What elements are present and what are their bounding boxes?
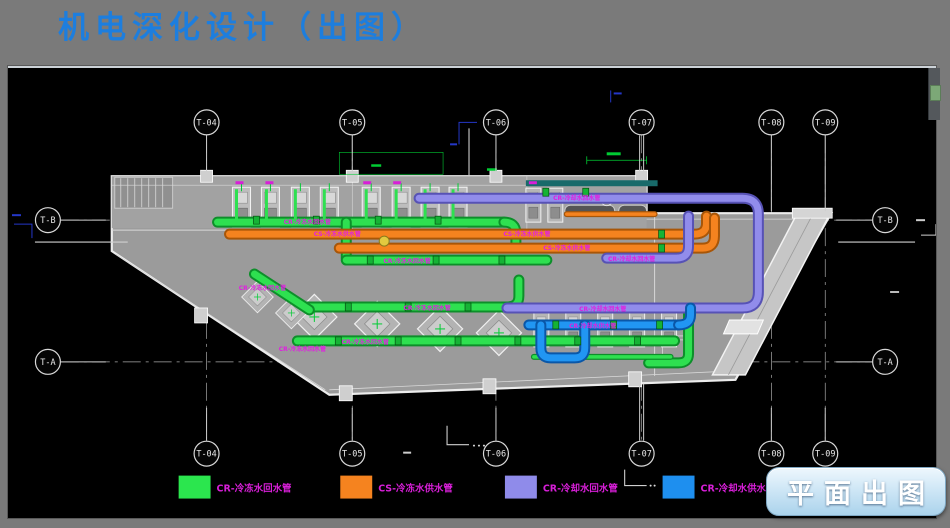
svg-text:T-04: T-04 (196, 117, 216, 127)
pipe-tag: CR-冷冻水回水管 (383, 257, 430, 265)
legend-swatch-cooling-return (505, 476, 537, 499)
legend-label: CR-冷却水回水管 (543, 483, 619, 495)
svg-text:T-B: T-B (877, 215, 892, 225)
svg-text:T-06: T-06 (486, 449, 506, 459)
legend-swatch-chilled-return (179, 476, 211, 499)
pipe-tag: CS-冷冻水供水管 (503, 230, 550, 238)
svg-text:T-A: T-A (40, 357, 55, 367)
svg-text:T-09: T-09 (815, 449, 835, 459)
floor-plan (112, 170, 832, 401)
svg-text:T-04: T-04 (196, 449, 216, 459)
svg-text:T-09: T-09 (815, 117, 835, 127)
svg-text:T-07: T-07 (631, 117, 651, 127)
svg-text:T-A: T-A (877, 357, 892, 367)
svg-text:T-05: T-05 (342, 117, 362, 127)
svg-text:T-07: T-07 (631, 449, 651, 459)
drawing-canvas[interactable]: CR-冷冻水回水管 CS-冷冻水供水管 CS-冷冻水供水管 CS-冷冻水供水管 … (8, 66, 936, 518)
pipe-tag: CR-冷冻水回水管 (279, 345, 326, 353)
pipe-tag: CR-冷却水回水管 (553, 194, 600, 202)
scrollbar-thumb[interactable] (930, 85, 941, 101)
pipe-tag: CR-冷冻水回水管 (284, 218, 331, 226)
pipe-tag: CR-冷却水供水管 (569, 322, 616, 330)
pipe-tag: CR-冷冻水回水管 (403, 304, 450, 312)
page-title: 机电深化设计（出图） (58, 2, 428, 47)
legend-label: CR-冷却水供水管 (701, 483, 777, 495)
svg-text:T-08: T-08 (761, 117, 781, 127)
inline-pump (379, 236, 389, 246)
svg-text:T-B: T-B (40, 215, 55, 225)
plan-export-button[interactable]: 平面出图 (766, 467, 946, 516)
pipe-tag: CS-冷冻水供水管 (543, 244, 590, 252)
legend-swatch-cooling-supply (663, 476, 695, 499)
pipe-tag: CR-冷冻水回水管 (239, 284, 286, 292)
legend-item: CR-冷冻水回水管 (179, 476, 292, 499)
header-bar: 机电深化设计（出图） (0, 0, 950, 64)
svg-text:T-08: T-08 (761, 449, 781, 459)
pipe-tag: CR-冷冻水回水管 (342, 338, 389, 346)
vertical-scrollbar[interactable] (928, 68, 940, 120)
legend-item: CR-冷却水回水管 (505, 476, 618, 499)
legend-item: CR-冷却水供水管 (663, 476, 776, 499)
pipe-tag: CR-冷却水回水管 (579, 305, 626, 313)
legend-item: CS-冷冻水供水管 (340, 476, 453, 499)
svg-text:T-05: T-05 (342, 449, 362, 459)
legend-label: CR-冷冻水回水管 (217, 483, 293, 495)
legend-label: CS-冷冻水供水管 (378, 483, 453, 495)
pipe-tag: CS-冷冻水供水管 (314, 230, 361, 238)
legend-swatch-chilled-supply (340, 476, 372, 499)
svg-text:T-06: T-06 (486, 117, 506, 127)
legend: CR-冷冻水回水管 CS-冷冻水供水管 CR-冷却水回水管 CR-冷却水供水管 (179, 476, 776, 499)
pipe-tag: CR-冷却水回水管 (608, 255, 655, 263)
